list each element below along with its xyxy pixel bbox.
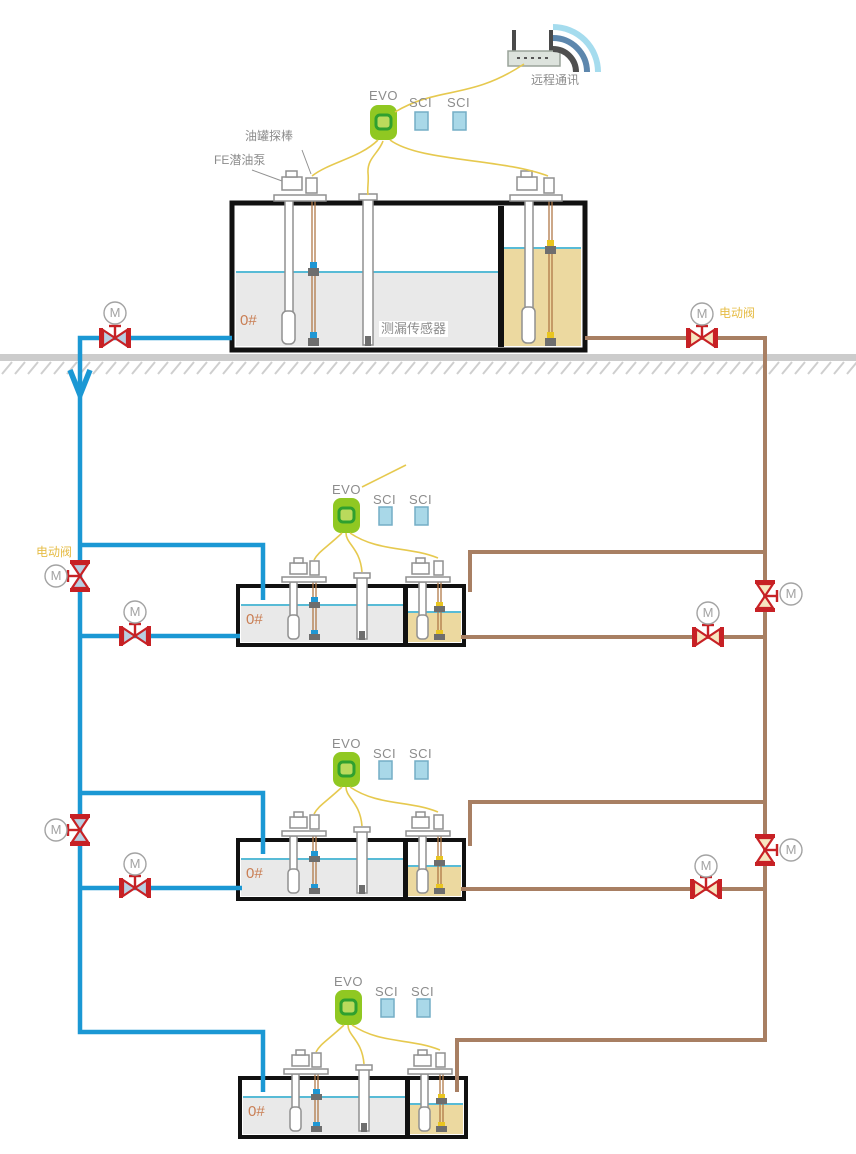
tank-unit-4 [240, 990, 466, 1137]
diagram-canvas: M M M M M M M M M M [0, 0, 856, 1154]
sci-label: SCI [409, 492, 432, 508]
grade-label: 0# [246, 611, 263, 629]
sci-label: SCI [373, 492, 396, 508]
motor-valve: M [119, 601, 151, 646]
wifi-router-icon [508, 30, 560, 66]
grade-label: 0# [248, 1103, 265, 1121]
supply-pipeline [80, 338, 263, 1092]
motor-valve: M [692, 602, 724, 647]
electric-valve-label: 电动阀 [36, 545, 72, 559]
svg-text:M: M [130, 604, 141, 619]
sci-module-icon [415, 112, 466, 130]
evo-label: EVO [332, 736, 361, 752]
svg-text:M: M [786, 586, 797, 601]
ground-line [0, 354, 856, 376]
sci-label: SCI [409, 746, 432, 762]
tank-unit-2 [238, 498, 464, 645]
sci-label: SCI [409, 95, 432, 111]
svg-text:M: M [51, 568, 62, 583]
sci-label: SCI [373, 746, 396, 762]
fuel-system-diagram: M M M M M M M M M M [0, 0, 856, 1154]
svg-text:M: M [701, 858, 712, 873]
motor-valve: M [45, 560, 90, 592]
motor-valve: M [755, 834, 802, 866]
evo-label: EVO [369, 88, 398, 104]
tank-probe-label: 油罐探棒 [245, 129, 293, 143]
svg-text:M: M [786, 842, 797, 857]
leak-sensor-label: 测漏传感器 [379, 321, 448, 337]
motor-valve: M [99, 302, 131, 348]
motor-valve: M [755, 580, 802, 612]
svg-text:M: M [130, 856, 141, 871]
grade-label: 0# [240, 312, 257, 330]
sci-label: SCI [447, 95, 470, 111]
evo-console-icon [370, 105, 397, 140]
evo-label: EVO [334, 974, 363, 990]
evo-label: EVO [332, 482, 361, 498]
sci-label: SCI [375, 984, 398, 1000]
return-pipeline [457, 338, 765, 1092]
motor-valve: M [119, 853, 151, 898]
motor-valve: M [45, 814, 90, 846]
svg-text:M: M [110, 305, 121, 320]
fe-pump-label: FE潜油泵 [214, 153, 265, 167]
remote-comm-label: 远程通讯 [531, 73, 579, 87]
motor-valve: M [690, 855, 722, 899]
electric-valve-label: 电动阀 [719, 306, 755, 320]
svg-text:M: M [51, 822, 62, 837]
motor-valve: M [686, 303, 718, 348]
svg-text:M: M [697, 306, 708, 321]
sci-label: SCI [411, 984, 434, 1000]
svg-text:M: M [703, 605, 714, 620]
grade-label: 0# [246, 865, 263, 883]
tank-unit-3 [238, 752, 464, 899]
